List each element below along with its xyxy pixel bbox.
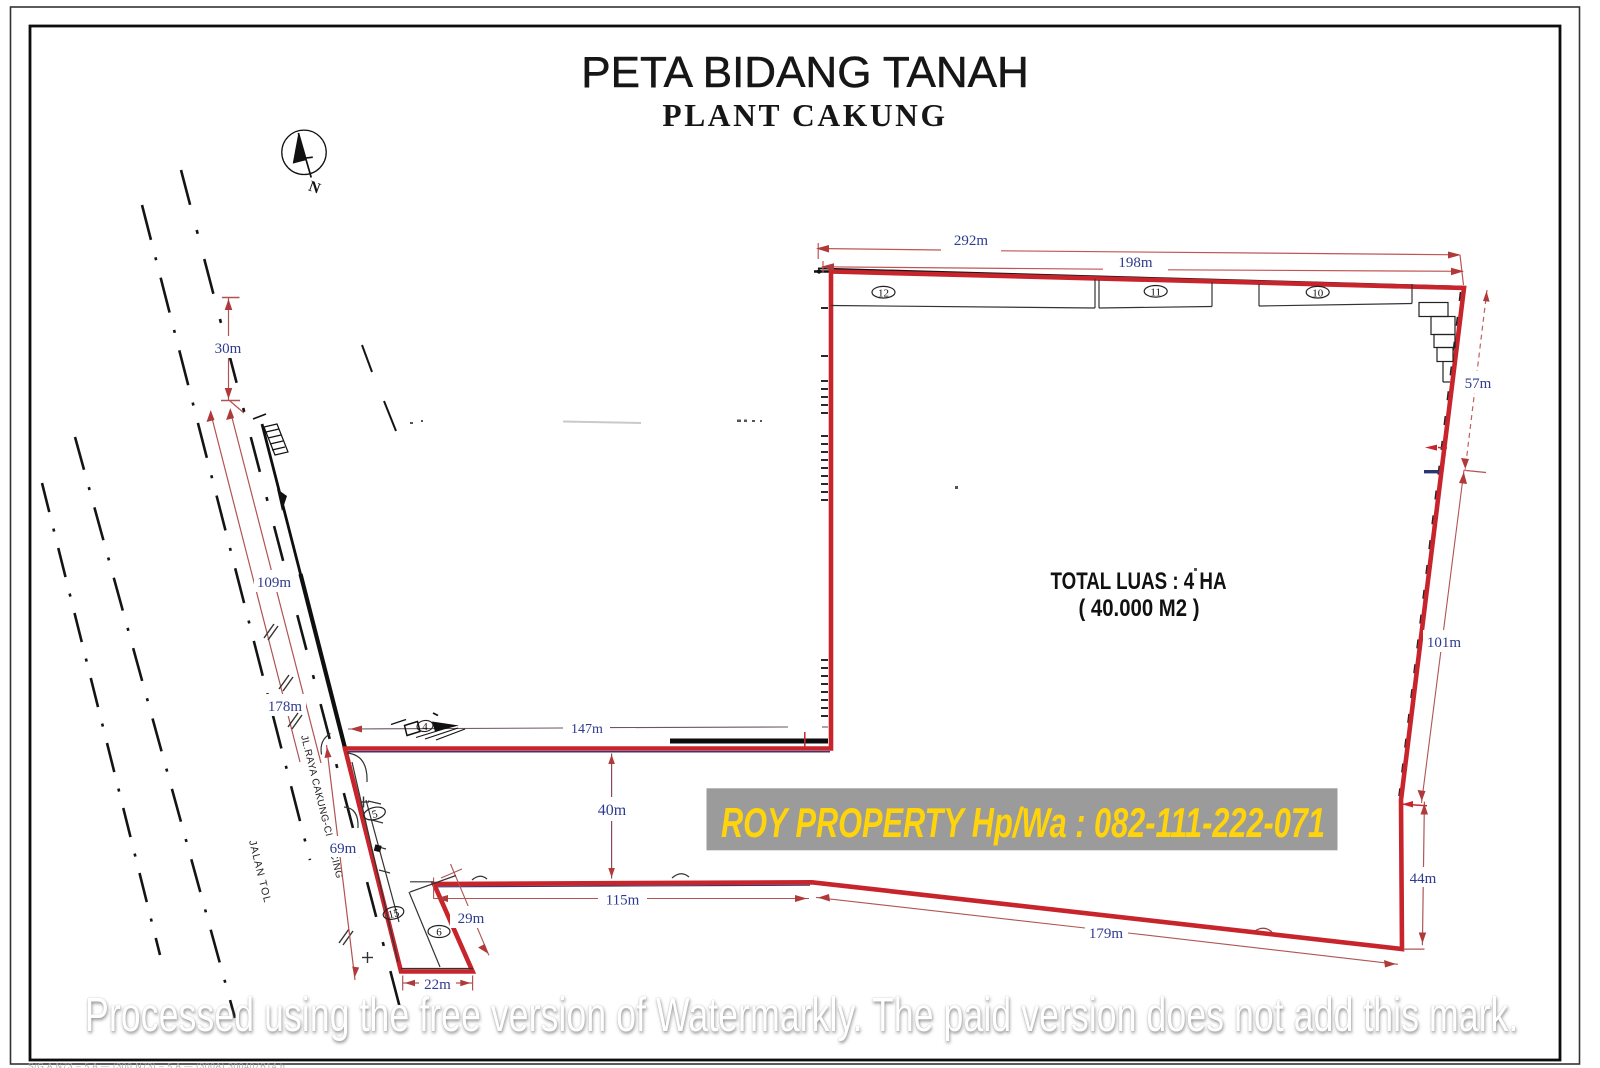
- svg-text:4: 4: [422, 721, 428, 733]
- svg-text:57m: 57m: [1465, 376, 1492, 392]
- svg-text:40m: 40m: [598, 802, 627, 819]
- svg-text:12: 12: [878, 287, 889, 299]
- svg-text:JALAN TOL: JALAN TOL: [246, 839, 273, 905]
- svg-text:292m: 292m: [954, 233, 989, 249]
- svg-text:S/G A N73 – 5 A — (300 N73) –: S/G A N73 – 5 A — (300 N73) – 5 A — (300…: [28, 1061, 285, 1068]
- svg-text:11: 11: [1150, 287, 1161, 299]
- svg-text:5: 5: [371, 808, 380, 821]
- svg-text:TOTAL LUAS : 4 HA: TOTAL LUAS : 4 HA: [1051, 568, 1227, 595]
- svg-text:44m: 44m: [1410, 871, 1437, 887]
- svg-text:( 40.000 M2 ): ( 40.000 M2 ): [1079, 595, 1200, 622]
- svg-text:115m: 115m: [606, 893, 640, 909]
- svg-text:15: 15: [387, 907, 401, 921]
- svg-text:179m: 179m: [1089, 926, 1124, 942]
- svg-text:6: 6: [436, 927, 442, 939]
- svg-text:69m: 69m: [330, 841, 357, 857]
- svg-text:198m: 198m: [1118, 255, 1153, 271]
- svg-text:ROY PROPERTY Hp/Wa : 082-111-2: ROY PROPERTY Hp/Wa : 082-111-222-071: [721, 799, 1325, 846]
- svg-text:147m: 147m: [571, 722, 603, 737]
- svg-text:10: 10: [1312, 287, 1324, 299]
- svg-text:PLANT CAKUNG: PLANT CAKUNG: [662, 98, 947, 133]
- svg-text:178m: 178m: [268, 699, 303, 715]
- svg-text:PETA BIDANG TANAH: PETA BIDANG TANAH: [581, 48, 1028, 97]
- svg-text:101m: 101m: [1427, 635, 1462, 651]
- svg-text:30m: 30m: [215, 341, 242, 357]
- svg-text:29m: 29m: [458, 911, 485, 927]
- svg-text:N: N: [306, 178, 322, 198]
- svg-text:109m: 109m: [257, 575, 292, 591]
- svg-text:JL.RAYA CAKUNG-CILINCING: JL.RAYA CAKUNG-CILINCING: [298, 734, 344, 880]
